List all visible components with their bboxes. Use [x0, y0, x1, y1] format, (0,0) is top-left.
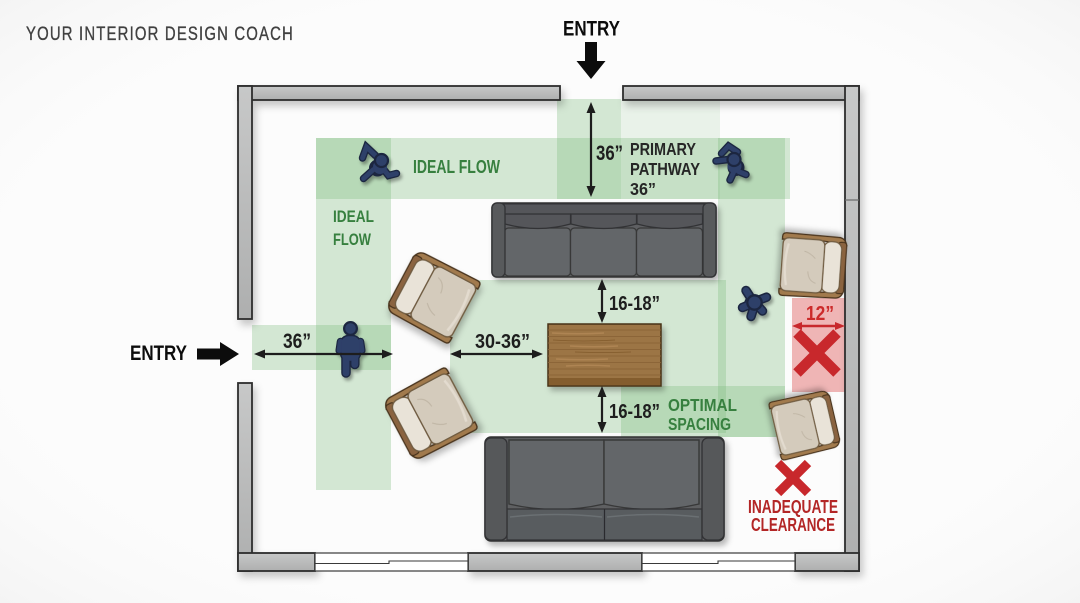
svg-text:ENTRY: ENTRY	[130, 342, 187, 365]
svg-text:CLEARANCE: CLEARANCE	[751, 514, 835, 535]
svg-text:30-36”: 30-36”	[475, 330, 530, 353]
svg-text:36”: 36”	[596, 142, 623, 165]
svg-text:IDEAL FLOW: IDEAL FLOW	[413, 157, 500, 177]
svg-text:IDEAL: IDEAL	[333, 207, 374, 226]
svg-text:FLOW: FLOW	[333, 230, 372, 249]
svg-text:OPTIMAL: OPTIMAL	[668, 395, 737, 415]
svg-text:12”: 12”	[806, 303, 834, 325]
svg-text:36”: 36”	[283, 330, 311, 353]
svg-text:16-18”: 16-18”	[609, 292, 660, 315]
svg-text:PRIMARY: PRIMARY	[630, 139, 696, 159]
svg-text:YOUR INTERIOR DESIGN COACH: YOUR INTERIOR DESIGN COACH	[26, 24, 294, 45]
svg-text:PATHWAY: PATHWAY	[630, 159, 700, 179]
svg-text:16-18”: 16-18”	[609, 400, 660, 423]
svg-text:36”: 36”	[630, 179, 656, 199]
svg-text:SPACING: SPACING	[668, 414, 731, 434]
svg-text:ENTRY: ENTRY	[563, 18, 620, 41]
